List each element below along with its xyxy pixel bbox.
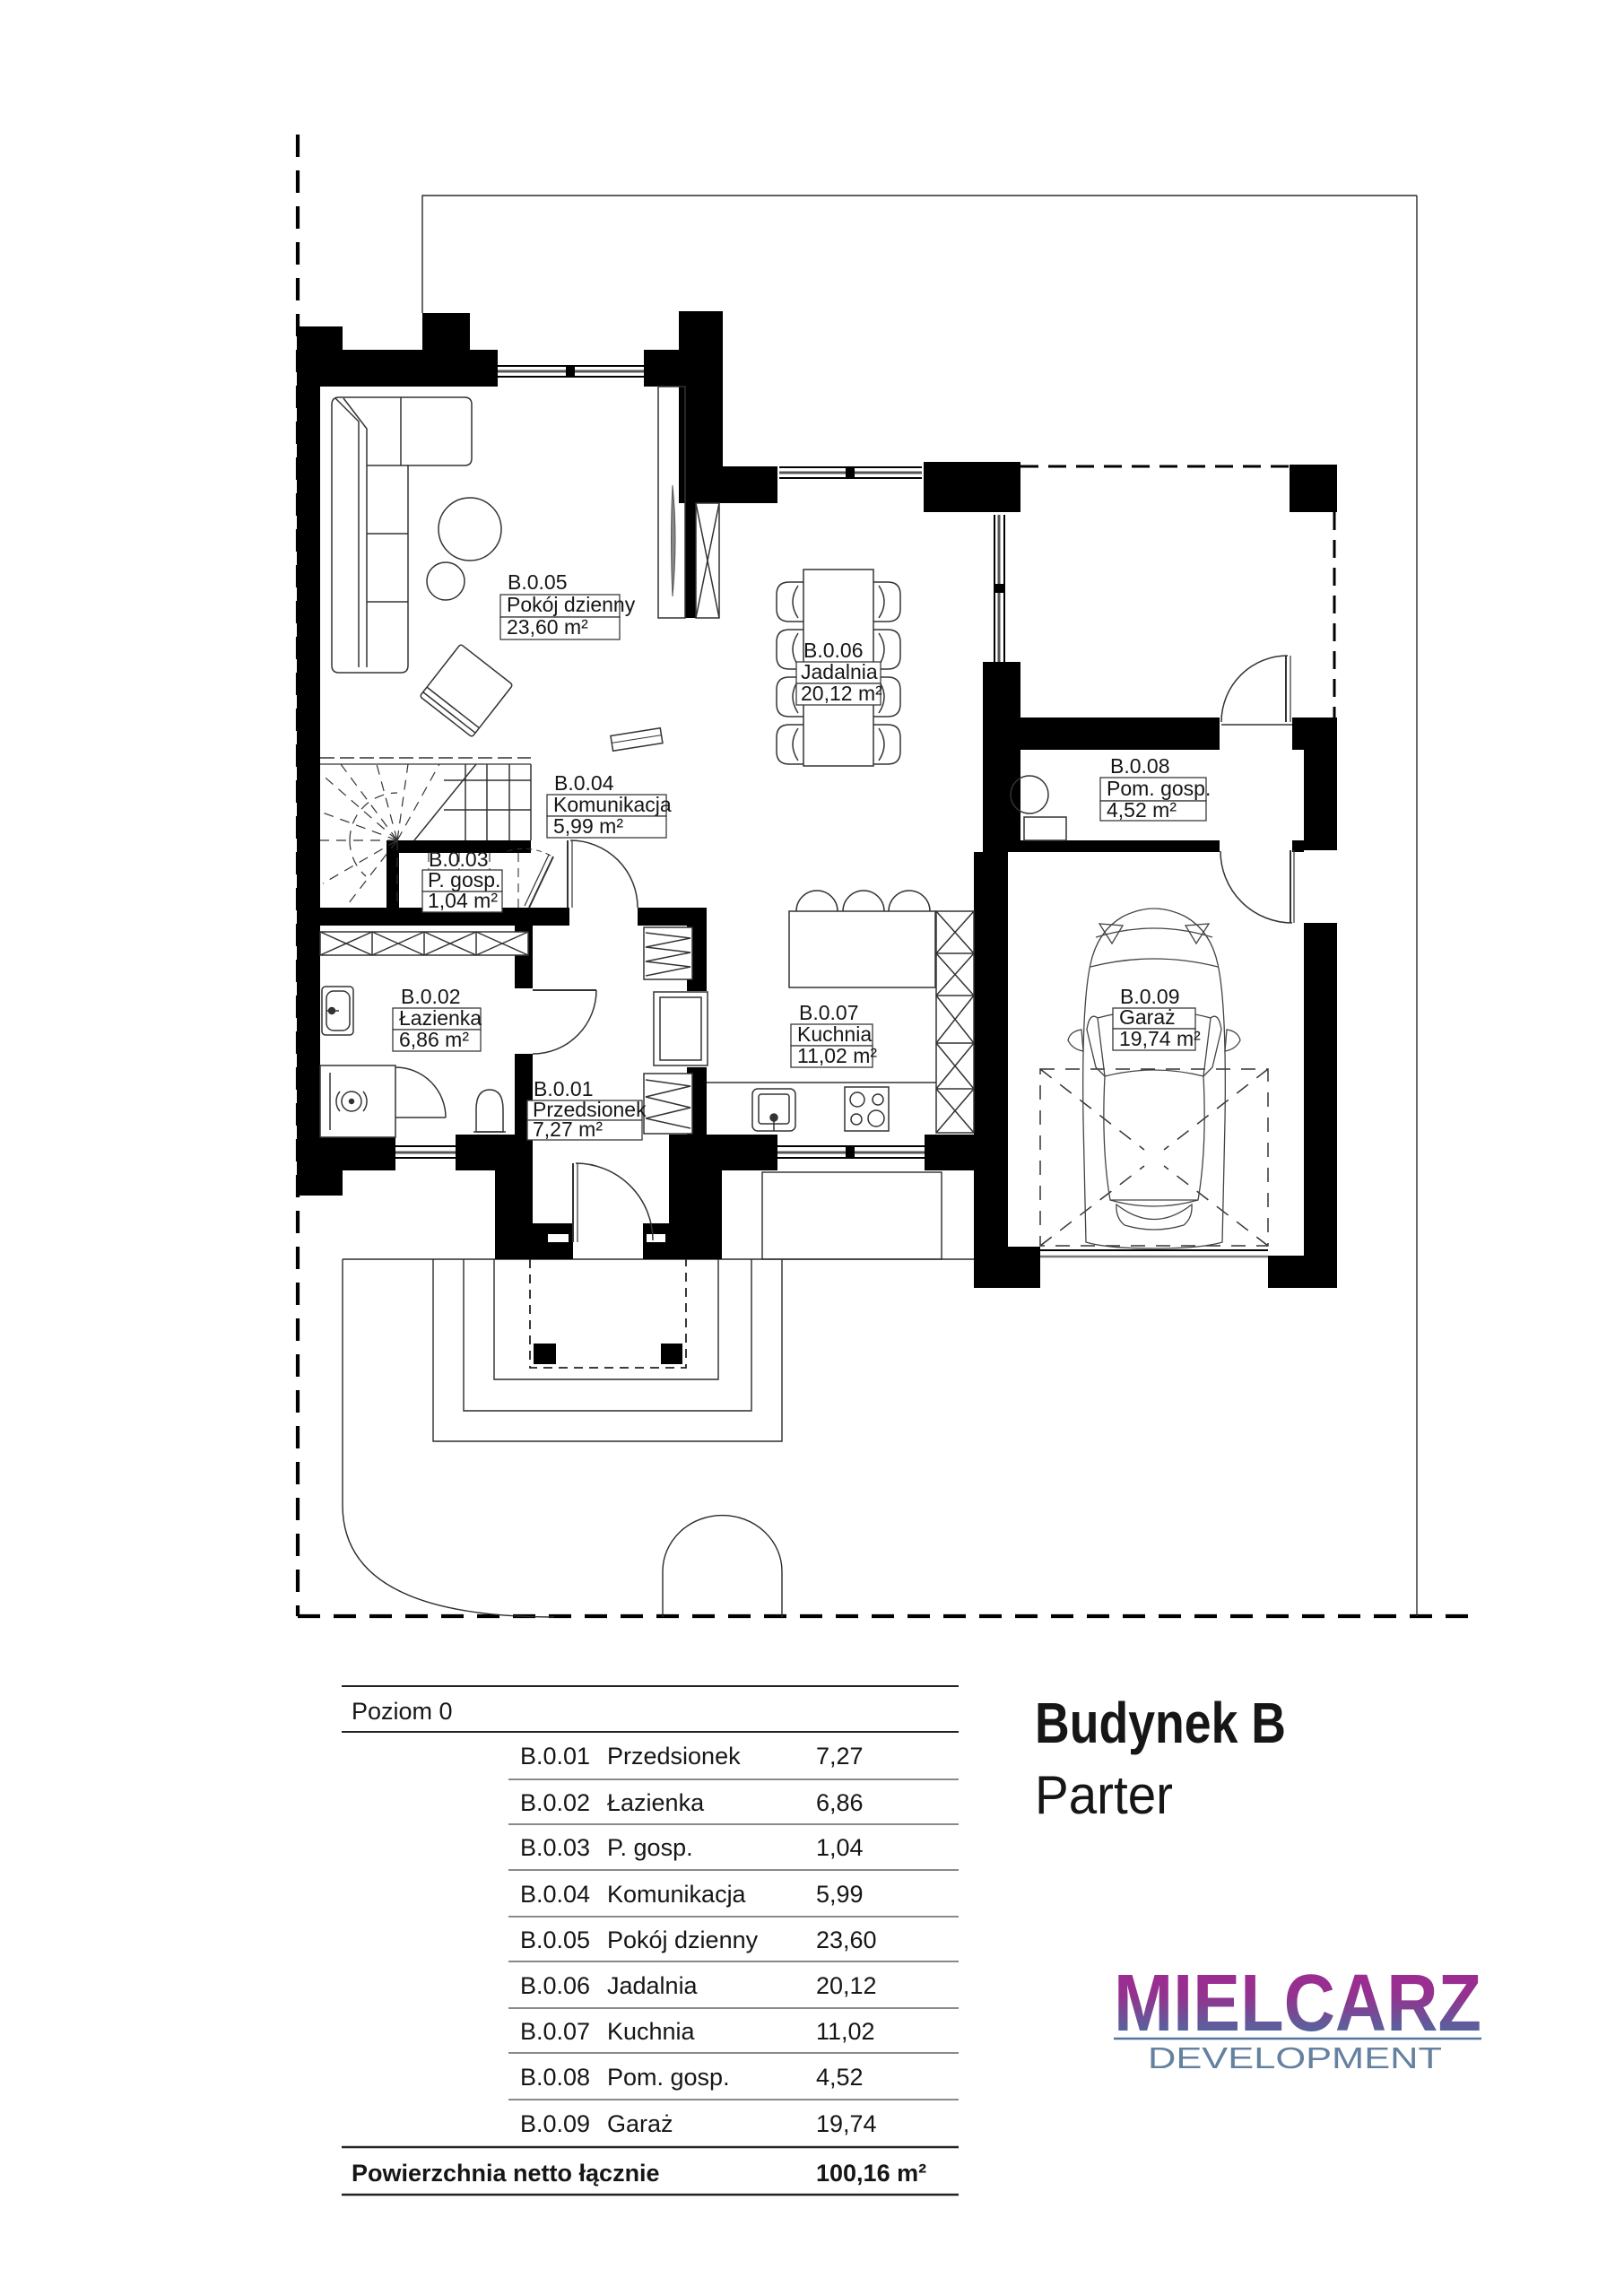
svg-text:P. gosp.: P. gosp. [607,1834,693,1861]
svg-text:B.0.02: B.0.02 [520,1789,590,1816]
svg-text:100,16 m²: 100,16 m² [816,2160,926,2187]
svg-text:Łazienka: Łazienka [399,1006,482,1030]
svg-text:B.0.05: B.0.05 [520,1926,590,1953]
svg-text:Komunikacja: Komunikacja [607,1881,747,1908]
svg-text:Budynek B: Budynek B [1035,1691,1286,1755]
svg-text:Kuchnia: Kuchnia [607,2018,696,2045]
svg-text:Pom. gosp.: Pom. gosp. [607,2064,730,2091]
svg-text:B.0.02: B.0.02 [401,985,461,1008]
svg-text:Łazienka: Łazienka [607,1789,705,1816]
svg-text:Garaż: Garaż [607,2110,673,2137]
svg-text:Pokój dzienny: Pokój dzienny [607,1926,759,1953]
svg-text:7,27 m²: 7,27 m² [533,1118,603,1141]
svg-text:4,52 m²: 4,52 m² [1107,798,1177,822]
svg-text:4,52: 4,52 [816,2064,864,2091]
svg-text:B.0.04: B.0.04 [554,771,614,795]
svg-text:B.0.04: B.0.04 [520,1881,590,1908]
svg-text:B.0.08: B.0.08 [1110,754,1170,778]
svg-text:11,02: 11,02 [816,2018,875,2045]
svg-text:Przedsionek: Przedsionek [607,1743,741,1770]
svg-text:19,74: 19,74 [816,2110,877,2137]
svg-text:7,27: 7,27 [816,1743,864,1770]
svg-text:6,86: 6,86 [816,1789,864,1816]
svg-text:1,04: 1,04 [816,1834,864,1861]
svg-text:Kuchnia: Kuchnia [797,1022,872,1046]
svg-text:20,12: 20,12 [816,1972,877,1999]
svg-text:19,74 m²: 19,74 m² [1119,1027,1201,1050]
svg-text:B.0.06: B.0.06 [520,1972,590,1999]
svg-text:Komunikacja: Komunikacja [553,793,672,816]
svg-text:B.0.07: B.0.07 [799,1001,859,1024]
svg-text:11,02 m²: 11,02 m² [797,1044,877,1067]
svg-text:DEVELOPMENT: DEVELOPMENT [1148,2041,1442,2074]
svg-text:Jadalnia: Jadalnia [607,1972,699,1999]
svg-text:1,04 m²: 1,04 m² [428,889,498,912]
svg-text:23,60 m²: 23,60 m² [507,615,588,639]
svg-text:Pom. gosp.: Pom. gosp. [1107,777,1211,800]
svg-text:MIELCARZ: MIELCARZ [1114,1959,1481,2048]
svg-text:B.0.08: B.0.08 [520,2064,590,2091]
svg-text:5,99: 5,99 [816,1881,864,1908]
svg-text:B.0.01: B.0.01 [520,1743,590,1770]
svg-text:B.0.09: B.0.09 [520,2110,590,2137]
svg-text:Jadalnia: Jadalnia [801,660,878,683]
svg-text:6,86 m²: 6,86 m² [399,1028,469,1051]
svg-text:B.0.07: B.0.07 [520,2018,590,2045]
svg-text:Pokój dzienny: Pokój dzienny [507,593,636,616]
svg-text:B.0.05: B.0.05 [508,570,568,594]
svg-text:B.0.06: B.0.06 [803,639,864,662]
svg-text:Garaż: Garaż [1119,1005,1176,1029]
svg-text:B.0.03: B.0.03 [520,1834,590,1861]
svg-text:20,12 m²: 20,12 m² [801,682,882,705]
svg-text:Poziom 0: Poziom 0 [352,1698,453,1725]
svg-text:Parter: Parter [1035,1765,1173,1825]
svg-text:23,60: 23,60 [816,1926,877,1953]
svg-text:Powierzchnia netto łącznie: Powierzchnia netto łącznie [352,2160,660,2187]
svg-text:5,99 m²: 5,99 m² [553,814,623,838]
